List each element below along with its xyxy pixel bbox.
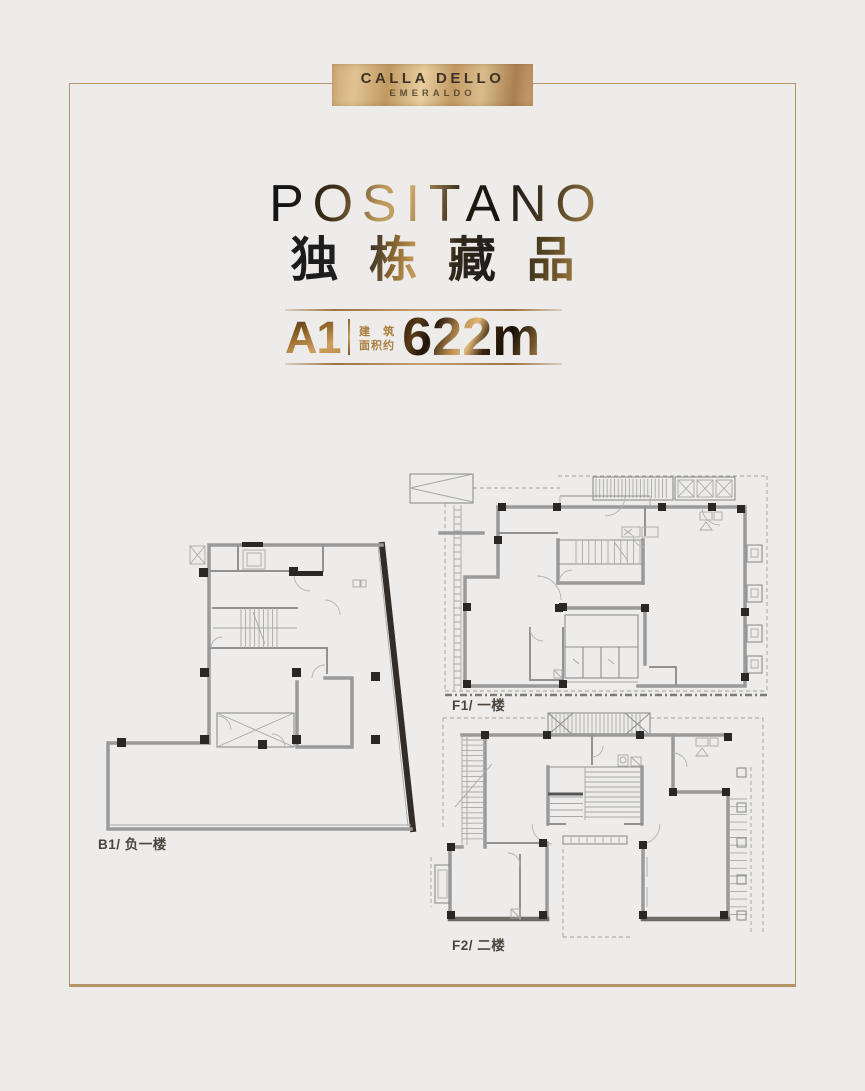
b1-outer-walls [108,545,413,829]
f1-entry-porch [558,608,676,684]
area-label-line2: 面积约 [359,340,399,353]
project-subtitle: 独栋藏品 [290,234,605,287]
f1-bathroom [530,628,563,680]
hero-title-row: POSITANO [69,176,796,233]
poster-page: CALLA DELLO EMERALDO POSITANO 独栋藏品 A1 建 … [0,0,865,1091]
b1-door-arcs [190,546,340,747]
f1-staircase [558,540,643,583]
project-title: POSITANO [269,175,605,233]
f2-left-staircase [455,735,492,847]
area-exponent: 2 [540,292,554,322]
area-label-line1: 建 筑 [359,326,399,339]
unit-spec-band: A1 建 筑 面积约 622m2 [285,309,562,365]
brand-name: CALLA DELLO [332,70,533,87]
f1-columns [463,503,749,688]
f1-outer-walls [440,496,745,686]
f2-right-top-room [673,735,728,792]
f1-bay-windows [747,545,762,673]
b1-lower-right-room [297,678,352,747]
unit-code: A1 [285,315,341,360]
spec-bottom-rule [285,363,562,365]
b1-garage-door [217,713,294,747]
area-value: 622m2 [402,310,555,364]
floorplan-f2 [425,707,775,942]
floorplan-f1-label: F1/ 一楼 [452,694,505,714]
floorplan-f1 [410,452,775,707]
f2-central-staircase [548,767,642,824]
spec-row: A1 建 筑 面积约 622m2 [285,312,562,362]
floorplan-f2-label: F2/ 二楼 [452,934,505,954]
area-label: 建 筑 面积约 [359,326,399,352]
spec-divider [348,319,351,355]
f2-pergola [548,713,650,735]
f2-left-wing [435,853,520,919]
f2-outer-walls [450,735,730,919]
f2-wc [592,735,641,766]
brand-logo-plaque: CALLA DELLO EMERALDO [332,64,533,106]
b1-columns [117,567,380,749]
floorplan-b1-label: B1/ 负一楼 [98,833,167,853]
floorplan-b1 [95,536,440,836]
f2-columns [447,731,732,919]
b1-staircase [209,608,327,648]
hero-subtitle-row: 独栋藏品 [69,233,796,288]
brand-subname: EMERALDO [332,88,533,99]
